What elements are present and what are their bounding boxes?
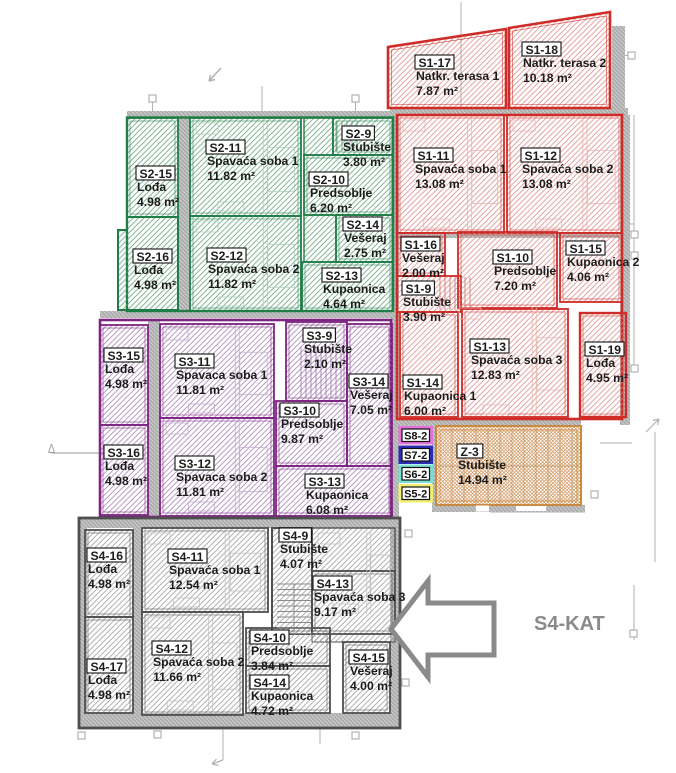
svg-text:3.80 m²: 3.80 m² <box>343 155 385 169</box>
svg-text:4.72 m²: 4.72 m² <box>251 704 293 718</box>
svg-text:S4-13: S4-13 <box>317 577 350 591</box>
svg-text:Spavaća soba 3: Spavaća soba 3 <box>314 590 406 604</box>
svg-text:Stubište: Stubište <box>304 342 352 356</box>
svg-text:4.06 m²: 4.06 m² <box>567 270 609 284</box>
svg-text:Z-3: Z-3 <box>461 445 480 459</box>
svg-text:Spavaća soba 2: Spavaća soba 2 <box>208 262 300 276</box>
svg-text:S3-16: S3-16 <box>108 446 141 460</box>
svg-text:2.10 m²: 2.10 m² <box>304 357 346 371</box>
svg-text:S3-14: S3-14 <box>353 375 386 389</box>
svg-text:Stubište: Stubište <box>343 140 391 154</box>
svg-text:7.20 m²: 7.20 m² <box>494 279 536 293</box>
svg-text:11.82 m²: 11.82 m² <box>207 169 255 183</box>
svg-text:S4-17: S4-17 <box>91 660 124 674</box>
svg-text:S1-11: S1-11 <box>418 149 450 163</box>
svg-text:4.95 m²: 4.95 m² <box>586 371 628 385</box>
svg-text:S2-16: S2-16 <box>137 250 170 264</box>
svg-text:14.94 m²: 14.94 m² <box>458 473 507 487</box>
svg-text:S4-15: S4-15 <box>353 651 386 665</box>
svg-text:7.05 m²: 7.05 m² <box>350 403 392 417</box>
svg-text:S1-16: S1-16 <box>405 238 438 252</box>
svg-text:S4-9: S4-9 <box>283 529 309 543</box>
svg-text:11.81 m²: 11.81 m² <box>176 383 224 397</box>
svg-text:S4-12: S4-12 <box>156 642 189 656</box>
svg-text:S6-2: S6-2 <box>404 469 427 481</box>
svg-text:Vešeraj: Vešeraj <box>344 231 387 245</box>
svg-text:S1-13: S1-13 <box>474 340 507 354</box>
svg-text:S2-9: S2-9 <box>346 127 372 141</box>
svg-text:S4-11: S4-11 <box>172 550 204 564</box>
svg-text:Spavaća soba 2: Spavaća soba 2 <box>153 655 245 669</box>
svg-text:S1-19: S1-19 <box>589 343 622 357</box>
svg-text:Lođa: Lođa <box>105 459 134 473</box>
svg-text:S4-10: S4-10 <box>254 631 287 645</box>
svg-text:S7-2: S7-2 <box>404 450 427 462</box>
svg-text:Spavaća soba 2: Spavaća soba 2 <box>522 162 614 176</box>
svg-text:6.08 m²: 6.08 m² <box>306 503 348 517</box>
svg-text:S2-12: S2-12 <box>211 249 244 263</box>
svg-text:S3-10: S3-10 <box>284 404 317 418</box>
svg-text:Predsoblje: Predsoblje <box>281 417 344 431</box>
svg-text:Spavaća soba 1: Spavaća soba 1 <box>207 154 299 168</box>
svg-text:Stubište: Stubište <box>458 458 506 472</box>
svg-text:9.17 m²: 9.17 m² <box>314 605 356 619</box>
svg-text:S1-9: S1-9 <box>406 282 432 296</box>
svg-text:S2-11: S2-11 <box>210 141 242 155</box>
svg-text:S3-12: S3-12 <box>179 457 212 471</box>
svg-text:Stubište: Stubište <box>403 295 451 309</box>
svg-text:Lođa: Lođa <box>134 263 163 277</box>
svg-text:13.08 m²: 13.08 m² <box>522 177 571 191</box>
svg-text:S3-15: S3-15 <box>108 349 141 363</box>
svg-text:Kupaonica: Kupaonica <box>306 488 369 502</box>
svg-text:S2-14: S2-14 <box>347 218 380 232</box>
svg-text:S4-KAT: S4-KAT <box>534 613 605 635</box>
svg-text:S1-10: S1-10 <box>497 251 530 265</box>
svg-text:Lođa: Lođa <box>586 356 615 370</box>
svg-text:6.00 m²: 6.00 m² <box>404 404 446 418</box>
svg-text:4.64 m²: 4.64 m² <box>323 297 365 311</box>
svg-text:S5-2: S5-2 <box>404 488 427 500</box>
svg-text:Lođa: Lođa <box>88 673 117 687</box>
svg-text:12.54 m²: 12.54 m² <box>169 578 218 592</box>
svg-text:S1-14: S1-14 <box>407 376 440 390</box>
svg-text:10.18 m²: 10.18 m² <box>523 71 572 85</box>
svg-text:11.81 m²: 11.81 m² <box>176 485 224 499</box>
svg-text:S4-14: S4-14 <box>254 676 287 690</box>
svg-text:2.75 m²: 2.75 m² <box>344 246 386 260</box>
svg-text:4.07 m²: 4.07 m² <box>280 557 322 571</box>
svg-text:Spavaca soba 2: Spavaca soba 2 <box>176 470 268 484</box>
svg-text:2.00 m²: 2.00 m² <box>402 266 444 280</box>
svg-text:Kupaonica: Kupaonica <box>323 282 386 296</box>
svg-text:3.90 m²: 3.90 m² <box>403 310 445 324</box>
svg-text:S1-17: S1-17 <box>419 56 452 70</box>
svg-text:Predsoblje: Predsoblje <box>310 186 373 200</box>
svg-text:Kupaonica 2: Kupaonica 2 <box>567 255 640 269</box>
svg-text:Vešeraj: Vešeraj <box>350 664 393 678</box>
svg-text:Kupaonica: Kupaonica <box>251 689 314 703</box>
svg-text:7.87 m²: 7.87 m² <box>416 84 458 98</box>
svg-text:6.20 m²: 6.20 m² <box>310 201 352 215</box>
svg-text:13.08 m²: 13.08 m² <box>415 177 464 191</box>
svg-text:11.66 m²: 11.66 m² <box>153 670 201 684</box>
svg-text:4.00 m²: 4.00 m² <box>350 679 392 693</box>
svg-text:S2-10: S2-10 <box>313 173 346 187</box>
svg-text:4.98 m²: 4.98 m² <box>137 195 179 209</box>
svg-text:Lođa: Lođa <box>105 362 134 376</box>
svg-text:Spavaća soba 3: Spavaća soba 3 <box>471 353 563 367</box>
svg-text:Spavaca soba 1: Spavaca soba 1 <box>176 368 268 382</box>
svg-text:S2-13: S2-13 <box>326 269 359 283</box>
svg-text:Lođa: Lođa <box>137 180 166 194</box>
svg-text:Spavaća soba 1: Spavaća soba 1 <box>415 162 507 176</box>
svg-text:Natkr. terasa 1: Natkr. terasa 1 <box>416 69 500 83</box>
svg-text:Spavaća soba 1: Spavaća soba 1 <box>169 563 261 577</box>
svg-text:Stubište: Stubište <box>280 542 328 556</box>
svg-text:S3-11: S3-11 <box>179 355 211 369</box>
svg-text:4.98 m²: 4.98 m² <box>105 377 147 391</box>
svg-text:Vešeraj: Vešeraj <box>350 388 393 402</box>
svg-text:S4-16: S4-16 <box>91 549 124 563</box>
svg-text:4.98 m²: 4.98 m² <box>105 474 147 488</box>
svg-text:S1-15: S1-15 <box>570 242 603 256</box>
svg-text:S3-13: S3-13 <box>309 475 342 489</box>
svg-text:Predsoblje: Predsoblje <box>494 264 557 278</box>
svg-text:S3-9: S3-9 <box>307 329 333 343</box>
svg-text:S1-12: S1-12 <box>525 149 558 163</box>
svg-text:Vešeraj: Vešeraj <box>402 251 445 265</box>
svg-text:4.98 m²: 4.98 m² <box>88 688 130 702</box>
svg-text:Predsoblje: Predsoblje <box>251 644 314 658</box>
svg-text:S2-15: S2-15 <box>140 167 173 181</box>
svg-text:S8-2: S8-2 <box>404 430 427 442</box>
svg-text:11.82 m²: 11.82 m² <box>208 277 256 291</box>
svg-text:4.98 m²: 4.98 m² <box>134 278 176 292</box>
svg-text:Kupaonica 1: Kupaonica 1 <box>404 389 477 403</box>
svg-text:4.98 m²: 4.98 m² <box>88 577 130 591</box>
svg-text:Natkr. terasa 2: Natkr. terasa 2 <box>523 56 607 70</box>
svg-text:Lođa: Lođa <box>88 562 117 576</box>
svg-text:3.84 m²: 3.84 m² <box>251 659 293 673</box>
svg-text:S1-18: S1-18 <box>526 43 559 57</box>
svg-text:12.83 m²: 12.83 m² <box>471 368 520 382</box>
svg-text:9.87 m²: 9.87 m² <box>281 432 323 446</box>
